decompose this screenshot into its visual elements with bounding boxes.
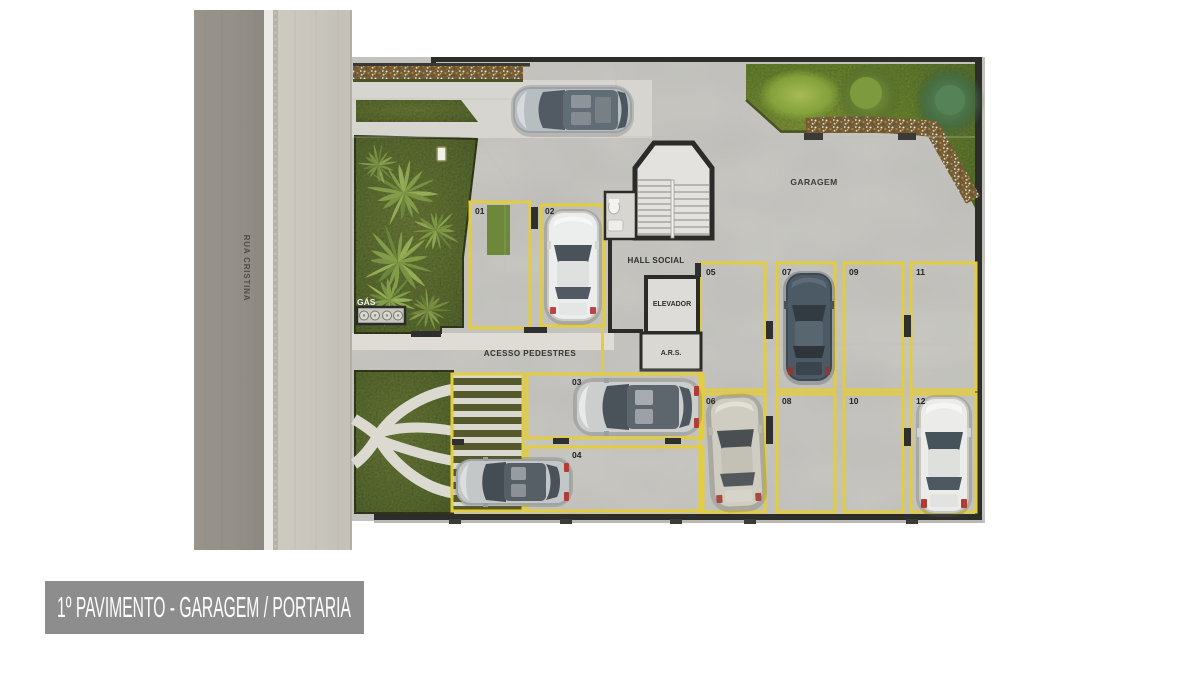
svg-text:08: 08 xyxy=(782,396,792,406)
svg-text:1º PAVIMENTO - GARAGEM / PORTA: 1º PAVIMENTO - GARAGEM / PORTARIA xyxy=(57,591,351,623)
svg-text:GARAGEM: GARAGEM xyxy=(790,177,837,187)
svg-text:RUA CRISTINA: RUA CRISTINA xyxy=(242,235,251,302)
svg-text:GÁS: GÁS xyxy=(357,297,376,307)
svg-text:10: 10 xyxy=(849,396,859,406)
svg-text:04: 04 xyxy=(572,450,582,460)
svg-text:A.R.S.: A.R.S. xyxy=(661,350,682,357)
svg-text:ELEVADOR: ELEVADOR xyxy=(653,301,691,308)
svg-text:06: 06 xyxy=(706,396,716,406)
svg-text:11: 11 xyxy=(916,267,925,277)
svg-text:09: 09 xyxy=(849,267,859,277)
svg-text:01: 01 xyxy=(475,206,485,216)
svg-text:ACESSO PEDESTRES: ACESSO PEDESTRES xyxy=(484,349,577,358)
svg-text:HALL SOCIAL: HALL SOCIAL xyxy=(628,256,685,265)
svg-text:12: 12 xyxy=(916,396,926,406)
svg-text:05: 05 xyxy=(706,267,716,277)
